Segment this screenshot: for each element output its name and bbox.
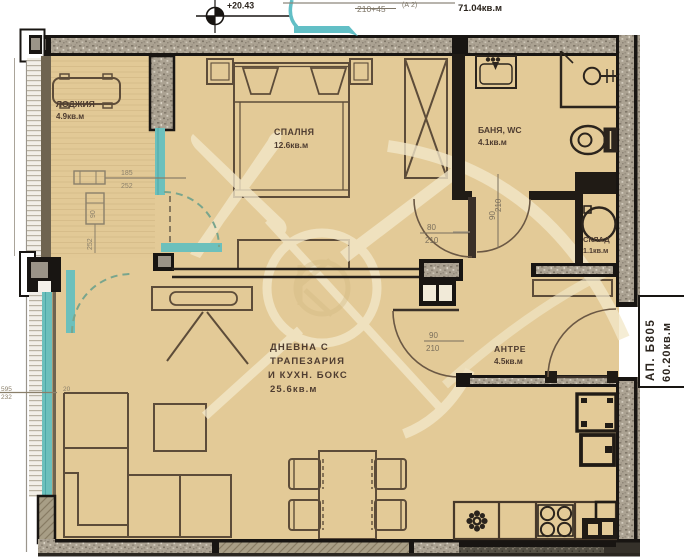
svg-text:12.6кв.м: 12.6кв.м xyxy=(274,140,308,150)
svg-text:80: 80 xyxy=(427,223,436,232)
svg-text:185: 185 xyxy=(121,170,133,177)
svg-text:90: 90 xyxy=(429,331,438,340)
svg-text:90: 90 xyxy=(90,210,97,218)
svg-text:(А 2): (А 2) xyxy=(402,2,417,9)
svg-text:СКЛАД: СКЛАД xyxy=(583,235,610,244)
svg-text:210: 210 xyxy=(494,198,503,212)
svg-text:1.1кв.м: 1.1кв.м xyxy=(583,246,608,255)
svg-text:595: 595 xyxy=(1,386,12,393)
svg-text:4.1кв.м: 4.1кв.м xyxy=(478,138,507,147)
svg-text:4.5кв.м: 4.5кв.м xyxy=(494,357,523,366)
svg-text:БАНЯ, WC: БАНЯ, WC xyxy=(478,125,522,135)
svg-text:СПАЛНЯ: СПАЛНЯ xyxy=(274,127,314,137)
svg-text:210: 210 xyxy=(425,236,439,245)
svg-text:252: 252 xyxy=(121,183,133,190)
svg-text:252: 252 xyxy=(87,238,94,250)
svg-text:ДНЕВНА С: ДНЕВНА С xyxy=(270,342,329,353)
svg-text:25.6кв.м: 25.6кв.м xyxy=(270,384,318,395)
svg-text:71.04кв.м: 71.04кв.м xyxy=(458,3,502,14)
svg-text:АП. Б805: АП. Б805 xyxy=(645,319,657,381)
svg-text:4.9кв.м: 4.9кв.м xyxy=(56,112,84,121)
svg-text:232: 232 xyxy=(1,394,12,401)
svg-text:210: 210 xyxy=(426,344,440,353)
svg-text:АНТРЕ: АНТРЕ xyxy=(494,344,526,354)
svg-text:И КУХН. БОКС: И КУХН. БОКС xyxy=(268,370,348,381)
svg-text:60.20кв.м: 60.20кв.м xyxy=(661,322,673,382)
svg-text:ТРАПЕЗАРИЯ: ТРАПЕЗАРИЯ xyxy=(270,356,345,367)
svg-text:ЛОДЖИЯ: ЛОДЖИЯ xyxy=(56,99,95,109)
svg-text:20: 20 xyxy=(63,386,71,393)
svg-text:+20.43: +20.43 xyxy=(227,1,254,11)
